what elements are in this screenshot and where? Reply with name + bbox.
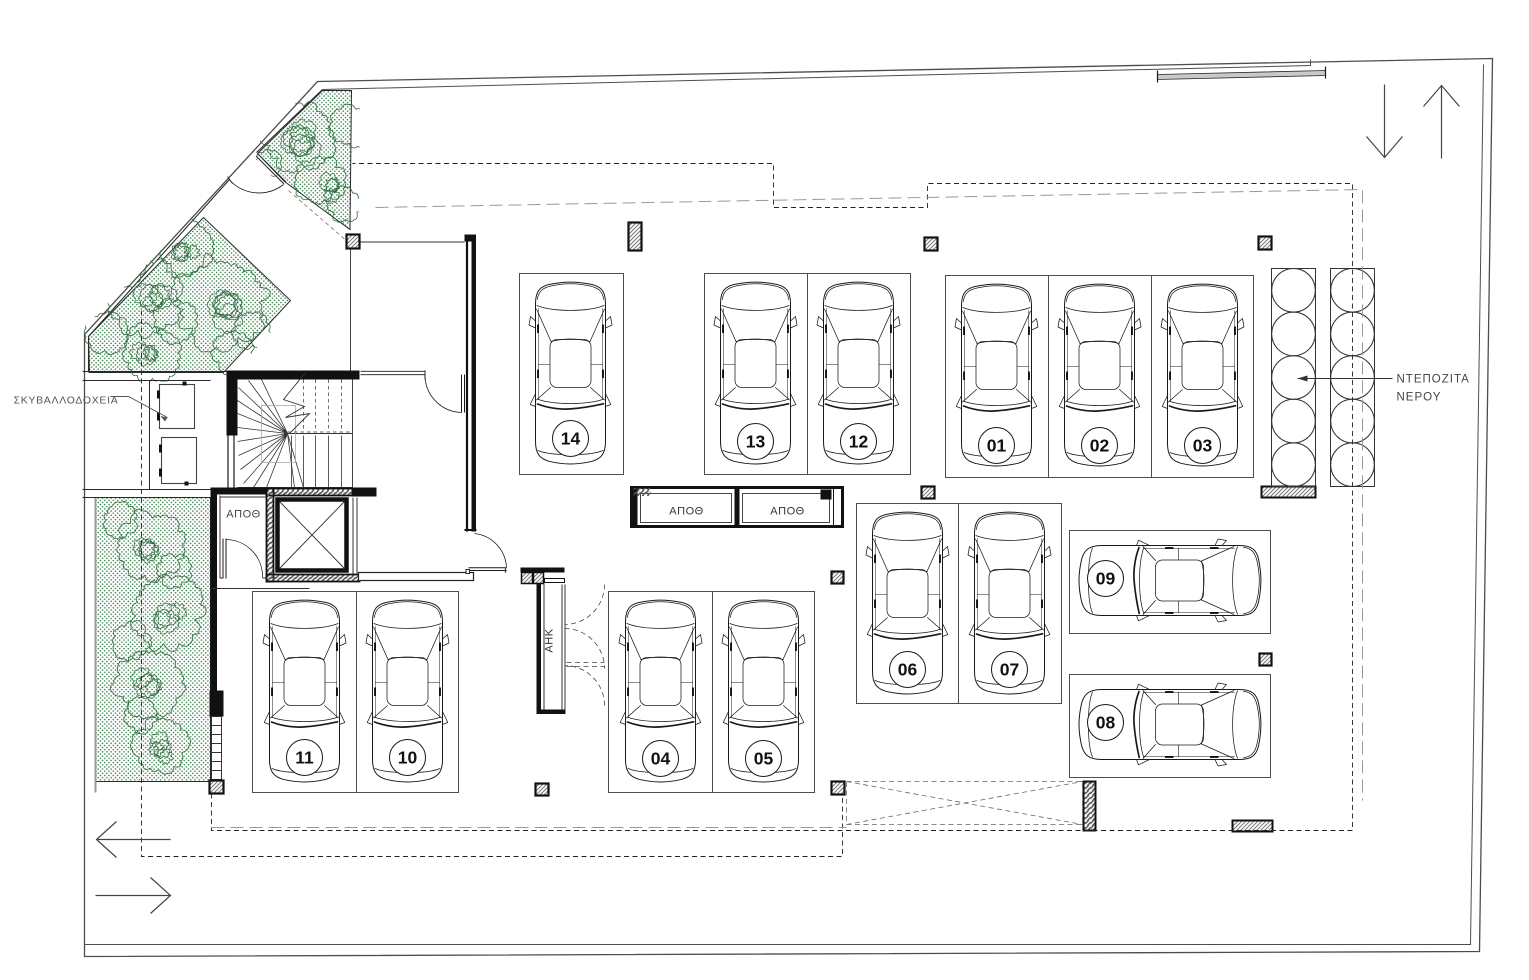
svg-text:ΑΠΟΘ: ΑΠΟΘ bbox=[770, 506, 804, 518]
svg-text:05: 05 bbox=[754, 749, 774, 769]
svg-text:ΑΗΚ: ΑΗΚ bbox=[544, 628, 556, 652]
svg-text:ΣΚΥΒΑΛΛΟΔΟΧΕΙΑ: ΣΚΥΒΑΛΛΟΔΟΧΕΙΑ bbox=[14, 395, 119, 407]
svg-text:02: 02 bbox=[1090, 436, 1110, 456]
svg-text:ΑΠΟΘ: ΑΠΟΘ bbox=[669, 506, 703, 518]
svg-text:ΝΤΕΠΟΖΙΤΑ: ΝΤΕΠΟΖΙΤΑ bbox=[1397, 374, 1470, 386]
svg-text:04: 04 bbox=[651, 749, 671, 769]
svg-text:01: 01 bbox=[987, 436, 1007, 456]
svg-text:14: 14 bbox=[561, 429, 581, 449]
svg-text:ΑΠΟΘ: ΑΠΟΘ bbox=[226, 509, 260, 521]
svg-text:03: 03 bbox=[1193, 436, 1213, 456]
svg-text:12: 12 bbox=[849, 432, 869, 452]
svg-text:11: 11 bbox=[295, 748, 314, 768]
svg-text:08: 08 bbox=[1096, 713, 1116, 733]
svg-text:09: 09 bbox=[1096, 569, 1116, 589]
svg-text:13: 13 bbox=[746, 432, 766, 452]
svg-text:06: 06 bbox=[898, 660, 918, 680]
svg-text:ΝΕΡΟΥ: ΝΕΡΟΥ bbox=[1397, 392, 1442, 404]
svg-text:07: 07 bbox=[1000, 660, 1019, 680]
svg-text:10: 10 bbox=[398, 748, 418, 768]
